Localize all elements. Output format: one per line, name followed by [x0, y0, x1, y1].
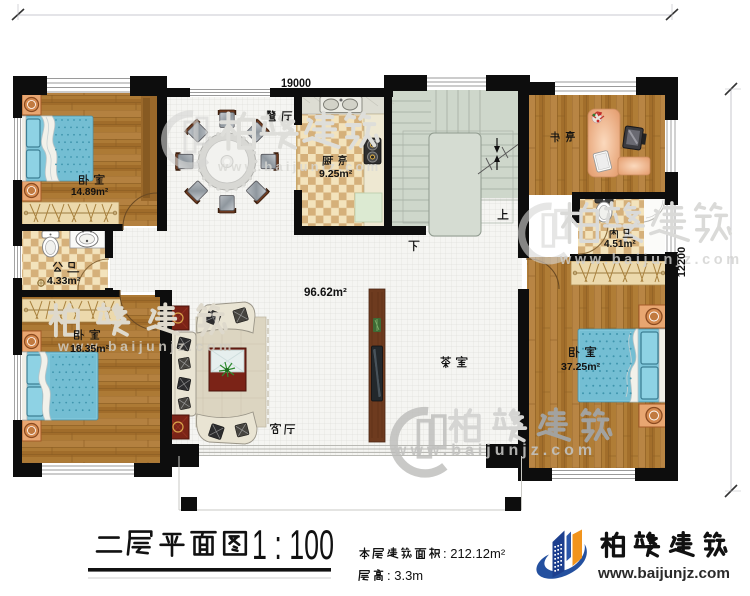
svg-text:www.baijunjz.com: www.baijunjz.com [217, 159, 381, 174]
svg-text:12200: 12200 [676, 247, 688, 278]
svg-text:www.baijunjz.com: www.baijunjz.com [559, 252, 743, 268]
svg-text:4.33m²: 4.33m² [47, 275, 81, 287]
svg-text:96.62m²: 96.62m² [304, 287, 347, 299]
svg-text:1 : 100: 1 : 100 [252, 521, 334, 568]
svg-text:37.25m²: 37.25m² [561, 361, 601, 373]
svg-text:18.35m²: 18.35m² [70, 343, 110, 355]
svg-text:www.baijunjz.com: www.baijunjz.com [393, 442, 596, 459]
svg-text:19000: 19000 [281, 78, 311, 90]
svg-text:4.51m²: 4.51m² [604, 239, 636, 250]
svg-text:: 3.3m: : 3.3m [387, 568, 423, 583]
svg-text:: 212.12m²: : 212.12m² [443, 546, 506, 561]
svg-text:14.89m²: 14.89m² [71, 187, 109, 198]
svg-text:9.25m²: 9.25m² [319, 168, 353, 180]
svg-text:www.baijunjz.com: www.baijunjz.com [597, 565, 730, 582]
